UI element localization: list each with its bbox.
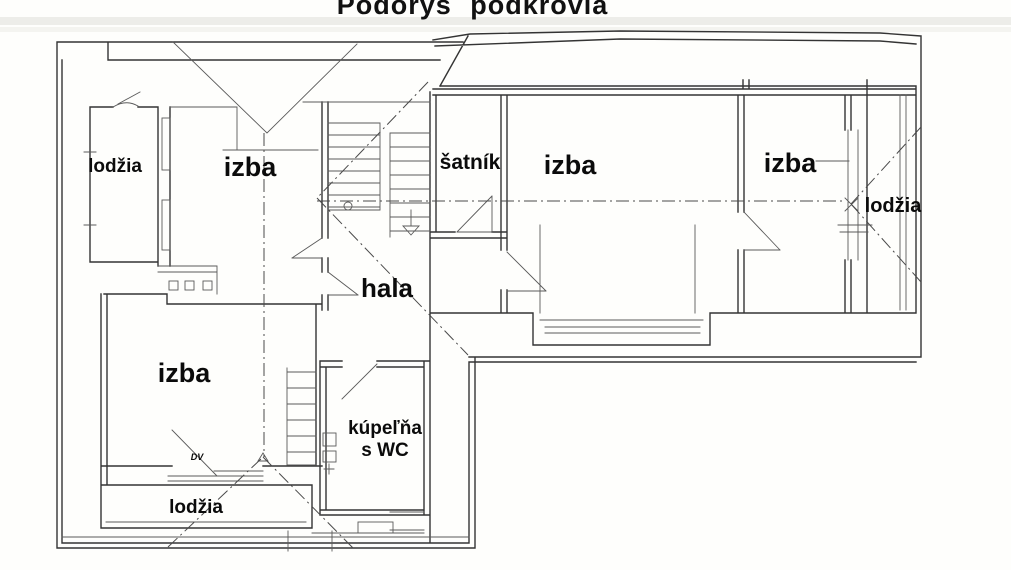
room-label-kupelna-line1: kúpeľňa <box>348 418 422 439</box>
room-label-izba-right: izba <box>764 148 817 178</box>
room-label-lodzia-top-left: lodžia <box>88 156 142 177</box>
room-label-izba-bottom: izba <box>158 358 211 388</box>
floor-plan-drawing: lodžia izba šatník izba izba lodžia hala… <box>0 0 1011 570</box>
window-pane-symbol <box>162 118 170 170</box>
room-label-satnik: šatník <box>440 151 501 174</box>
radiator-symbol <box>169 281 178 290</box>
room-label-lodzia-right: lodžia <box>865 195 923 217</box>
room-label-hala: hala <box>361 273 414 303</box>
floor-plan-page: Pôdorys podkrovia lodžia izba <box>0 0 1011 570</box>
radiator-symbol <box>185 281 194 290</box>
bathroom-fixture-symbol <box>323 451 336 462</box>
window-pane-symbol <box>162 200 170 250</box>
stair-column-symbol <box>344 202 352 210</box>
walls <box>57 31 921 548</box>
chimney-symbol <box>358 522 393 533</box>
radiator-symbol <box>203 281 212 290</box>
room-label-kupelna-line2: s WC <box>361 440 409 461</box>
room-label-izba-center: izba <box>544 150 597 180</box>
door-mark-dv: DV <box>191 452 204 462</box>
bathroom-fixture-symbol <box>323 433 336 446</box>
room-label-lodzia-bottom: lodžia <box>169 497 223 518</box>
detail-lines <box>62 42 906 551</box>
room-label-izba-top-left: izba <box>224 152 277 182</box>
